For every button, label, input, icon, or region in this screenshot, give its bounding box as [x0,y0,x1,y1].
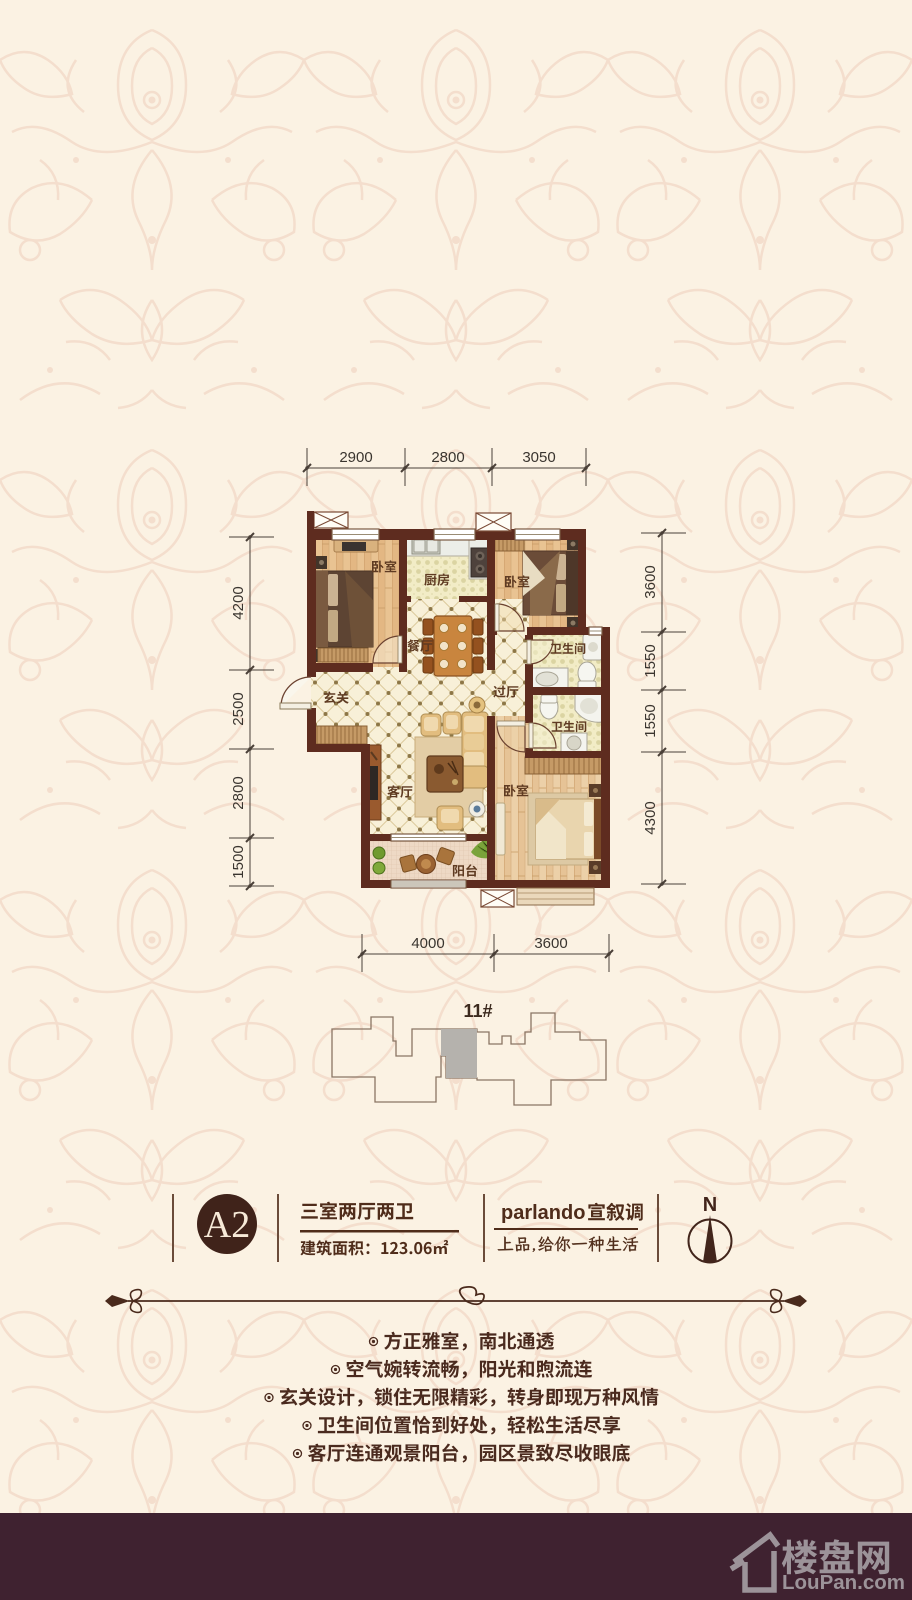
svg-text:3600: 3600 [642,565,659,598]
svg-text:4200: 4200 [230,586,247,619]
svg-text:2800: 2800 [431,449,464,466]
svg-text:3050: 3050 [522,449,555,466]
svg-text:LouPan.com: LouPan.com [782,1571,905,1594]
svg-text:2900: 2900 [339,449,372,466]
svg-text:11#: 11# [463,1001,492,1021]
svg-text:1550: 1550 [642,644,659,677]
svg-text:3600: 3600 [534,935,567,952]
svg-text:2500: 2500 [230,692,247,725]
svg-text:parlando: parlando [501,1202,585,1224]
svg-text:1500: 1500 [230,845,247,878]
svg-text:A2: A2 [204,1204,250,1246]
svg-text:4000: 4000 [411,935,444,952]
svg-text:4300: 4300 [642,801,659,834]
svg-text:1550: 1550 [642,704,659,737]
svg-text:N: N [703,1194,717,1216]
svg-text:2800: 2800 [230,776,247,809]
